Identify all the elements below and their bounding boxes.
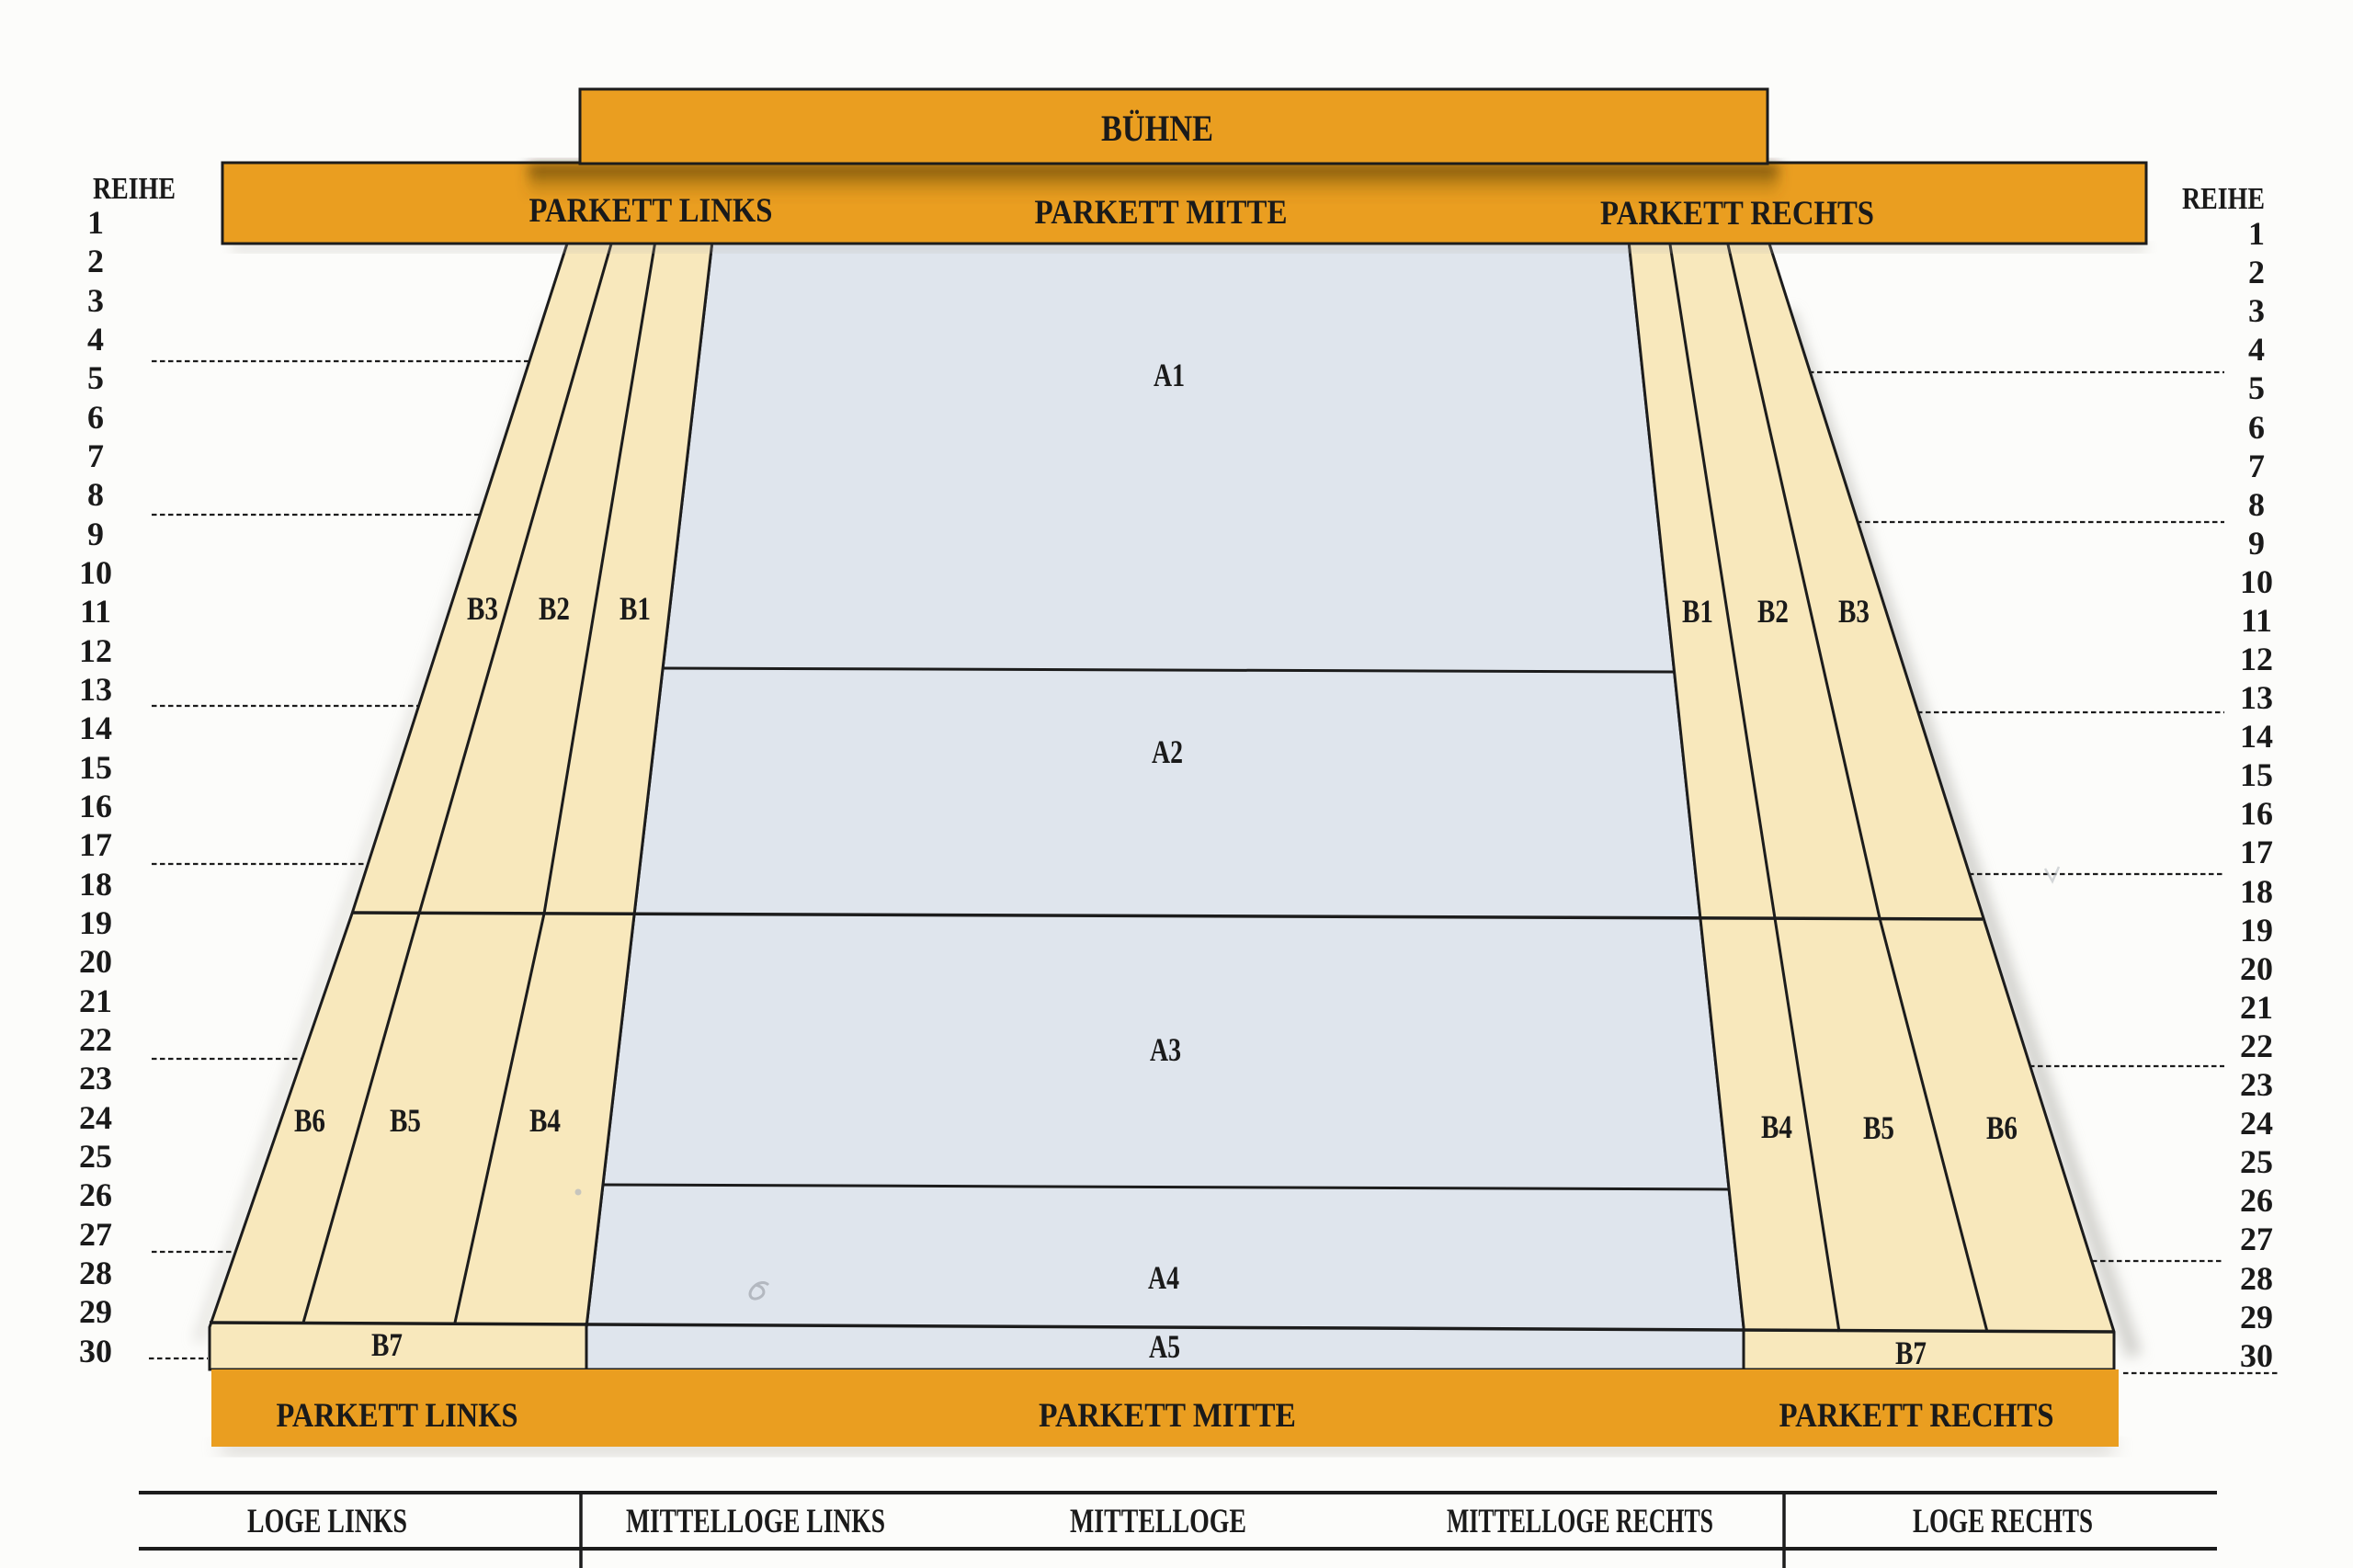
svg-text:PARKETT LINKS: PARKETT LINKS xyxy=(277,1397,518,1435)
svg-text:1: 1 xyxy=(87,204,104,241)
svg-text:30: 30 xyxy=(2240,1337,2273,1374)
svg-text:3: 3 xyxy=(2248,292,2265,329)
svg-text:21: 21 xyxy=(79,983,112,1019)
svg-text:2: 2 xyxy=(87,243,104,279)
svg-text:19: 19 xyxy=(2240,912,2273,949)
svg-text:13: 13 xyxy=(79,671,112,708)
svg-text:PARKETT RECHTS: PARKETT RECHTS xyxy=(1779,1397,2054,1435)
svg-text:22: 22 xyxy=(2240,1028,2273,1064)
svg-text:MITTELLOGE: MITTELLOGE xyxy=(1070,1503,1246,1540)
svg-text:A5: A5 xyxy=(1149,1328,1180,1365)
svg-text:B4: B4 xyxy=(529,1102,561,1139)
svg-text:B2: B2 xyxy=(1757,593,1789,630)
svg-text:LOGE LINKS: LOGE LINKS xyxy=(247,1503,407,1540)
svg-text:MITTELLOGE LINKS: MITTELLOGE LINKS xyxy=(626,1503,885,1540)
svg-text:20: 20 xyxy=(79,943,112,980)
svg-text:MITTELLOGE RECHTS: MITTELLOGE RECHTS xyxy=(1447,1503,1713,1540)
svg-text:1: 1 xyxy=(2248,215,2265,252)
svg-text:10: 10 xyxy=(2240,563,2273,600)
svg-text:18: 18 xyxy=(2240,873,2273,910)
svg-text:25: 25 xyxy=(79,1138,112,1175)
svg-text:14: 14 xyxy=(2240,718,2273,755)
svg-text:B1: B1 xyxy=(620,590,651,627)
svg-text:B4: B4 xyxy=(1761,1108,1792,1145)
svg-text:12: 12 xyxy=(2240,641,2273,677)
svg-text:27: 27 xyxy=(79,1216,112,1253)
svg-text:A4: A4 xyxy=(1148,1259,1179,1296)
svg-text:17: 17 xyxy=(2240,834,2273,870)
svg-text:12: 12 xyxy=(79,632,112,669)
svg-text:B2: B2 xyxy=(539,590,570,627)
svg-text:26: 26 xyxy=(79,1176,112,1213)
svg-text:BÜHNE: BÜHNE xyxy=(1101,108,1213,149)
svg-text:17: 17 xyxy=(79,826,112,863)
svg-text:REIHE: REIHE xyxy=(2182,182,2265,216)
svg-text:11: 11 xyxy=(80,593,111,630)
svg-text:B1: B1 xyxy=(1682,593,1713,630)
svg-text:7: 7 xyxy=(2248,448,2265,484)
svg-text:B6: B6 xyxy=(294,1102,325,1139)
svg-text:10: 10 xyxy=(79,554,112,591)
svg-text:A3: A3 xyxy=(1150,1031,1181,1068)
svg-text:B3: B3 xyxy=(1838,593,1870,630)
svg-text:7: 7 xyxy=(87,437,104,474)
svg-text:23: 23 xyxy=(79,1060,112,1096)
svg-text:8: 8 xyxy=(87,476,104,513)
svg-text:A2: A2 xyxy=(1152,733,1183,770)
svg-text:18: 18 xyxy=(79,866,112,903)
svg-text:11: 11 xyxy=(2241,602,2272,639)
svg-text:28: 28 xyxy=(2240,1260,2273,1297)
svg-text:20: 20 xyxy=(2240,950,2273,987)
svg-text:8: 8 xyxy=(2248,486,2265,523)
svg-text:5: 5 xyxy=(2248,369,2265,406)
svg-text:21: 21 xyxy=(2240,989,2273,1026)
svg-text:3: 3 xyxy=(87,282,104,319)
svg-text:6: 6 xyxy=(2248,409,2265,446)
svg-text:23: 23 xyxy=(2240,1066,2273,1103)
svg-text:27: 27 xyxy=(2240,1221,2273,1257)
svg-text:16: 16 xyxy=(79,788,112,824)
svg-text:4: 4 xyxy=(2248,331,2265,368)
svg-text:2: 2 xyxy=(2248,254,2265,290)
svg-text:24: 24 xyxy=(79,1099,112,1136)
svg-text:16: 16 xyxy=(2240,795,2273,832)
svg-text:28: 28 xyxy=(79,1255,112,1291)
svg-text:B6: B6 xyxy=(1986,1109,2018,1146)
svg-text:25: 25 xyxy=(2240,1143,2273,1180)
svg-text:PARKETT LINKS: PARKETT LINKS xyxy=(529,192,773,230)
svg-text:29: 29 xyxy=(2240,1299,2273,1335)
svg-text:5: 5 xyxy=(87,359,104,396)
svg-text:22: 22 xyxy=(79,1021,112,1058)
svg-text:30: 30 xyxy=(79,1333,112,1369)
svg-text:PARKETT RECHTS: PARKETT RECHTS xyxy=(1600,195,1874,233)
svg-text:26: 26 xyxy=(2240,1182,2273,1219)
svg-text:B7: B7 xyxy=(371,1326,403,1363)
svg-text:4: 4 xyxy=(87,321,104,358)
svg-text:PARKETT MITTE: PARKETT MITTE xyxy=(1035,194,1288,232)
svg-text:B5: B5 xyxy=(390,1102,421,1139)
svg-text:19: 19 xyxy=(79,904,112,941)
svg-text:B7: B7 xyxy=(1895,1335,1927,1371)
svg-text:REIHE: REIHE xyxy=(93,172,176,206)
svg-text:15: 15 xyxy=(2240,756,2273,793)
svg-text:14: 14 xyxy=(79,710,112,746)
svg-text:9: 9 xyxy=(2248,525,2265,562)
svg-text:9: 9 xyxy=(87,516,104,552)
svg-text:PARKETT MITTE: PARKETT MITTE xyxy=(1039,1397,1296,1435)
svg-text:A1: A1 xyxy=(1154,357,1185,393)
svg-text:B5: B5 xyxy=(1863,1109,1894,1146)
svg-text:29: 29 xyxy=(79,1293,112,1330)
svg-text:LOGE RECHTS: LOGE RECHTS xyxy=(1913,1503,2093,1540)
svg-text:13: 13 xyxy=(2240,679,2273,716)
svg-text:24: 24 xyxy=(2240,1105,2273,1142)
svg-text:B3: B3 xyxy=(467,590,498,627)
svg-text:6: 6 xyxy=(87,399,104,436)
svg-text:15: 15 xyxy=(79,749,112,786)
